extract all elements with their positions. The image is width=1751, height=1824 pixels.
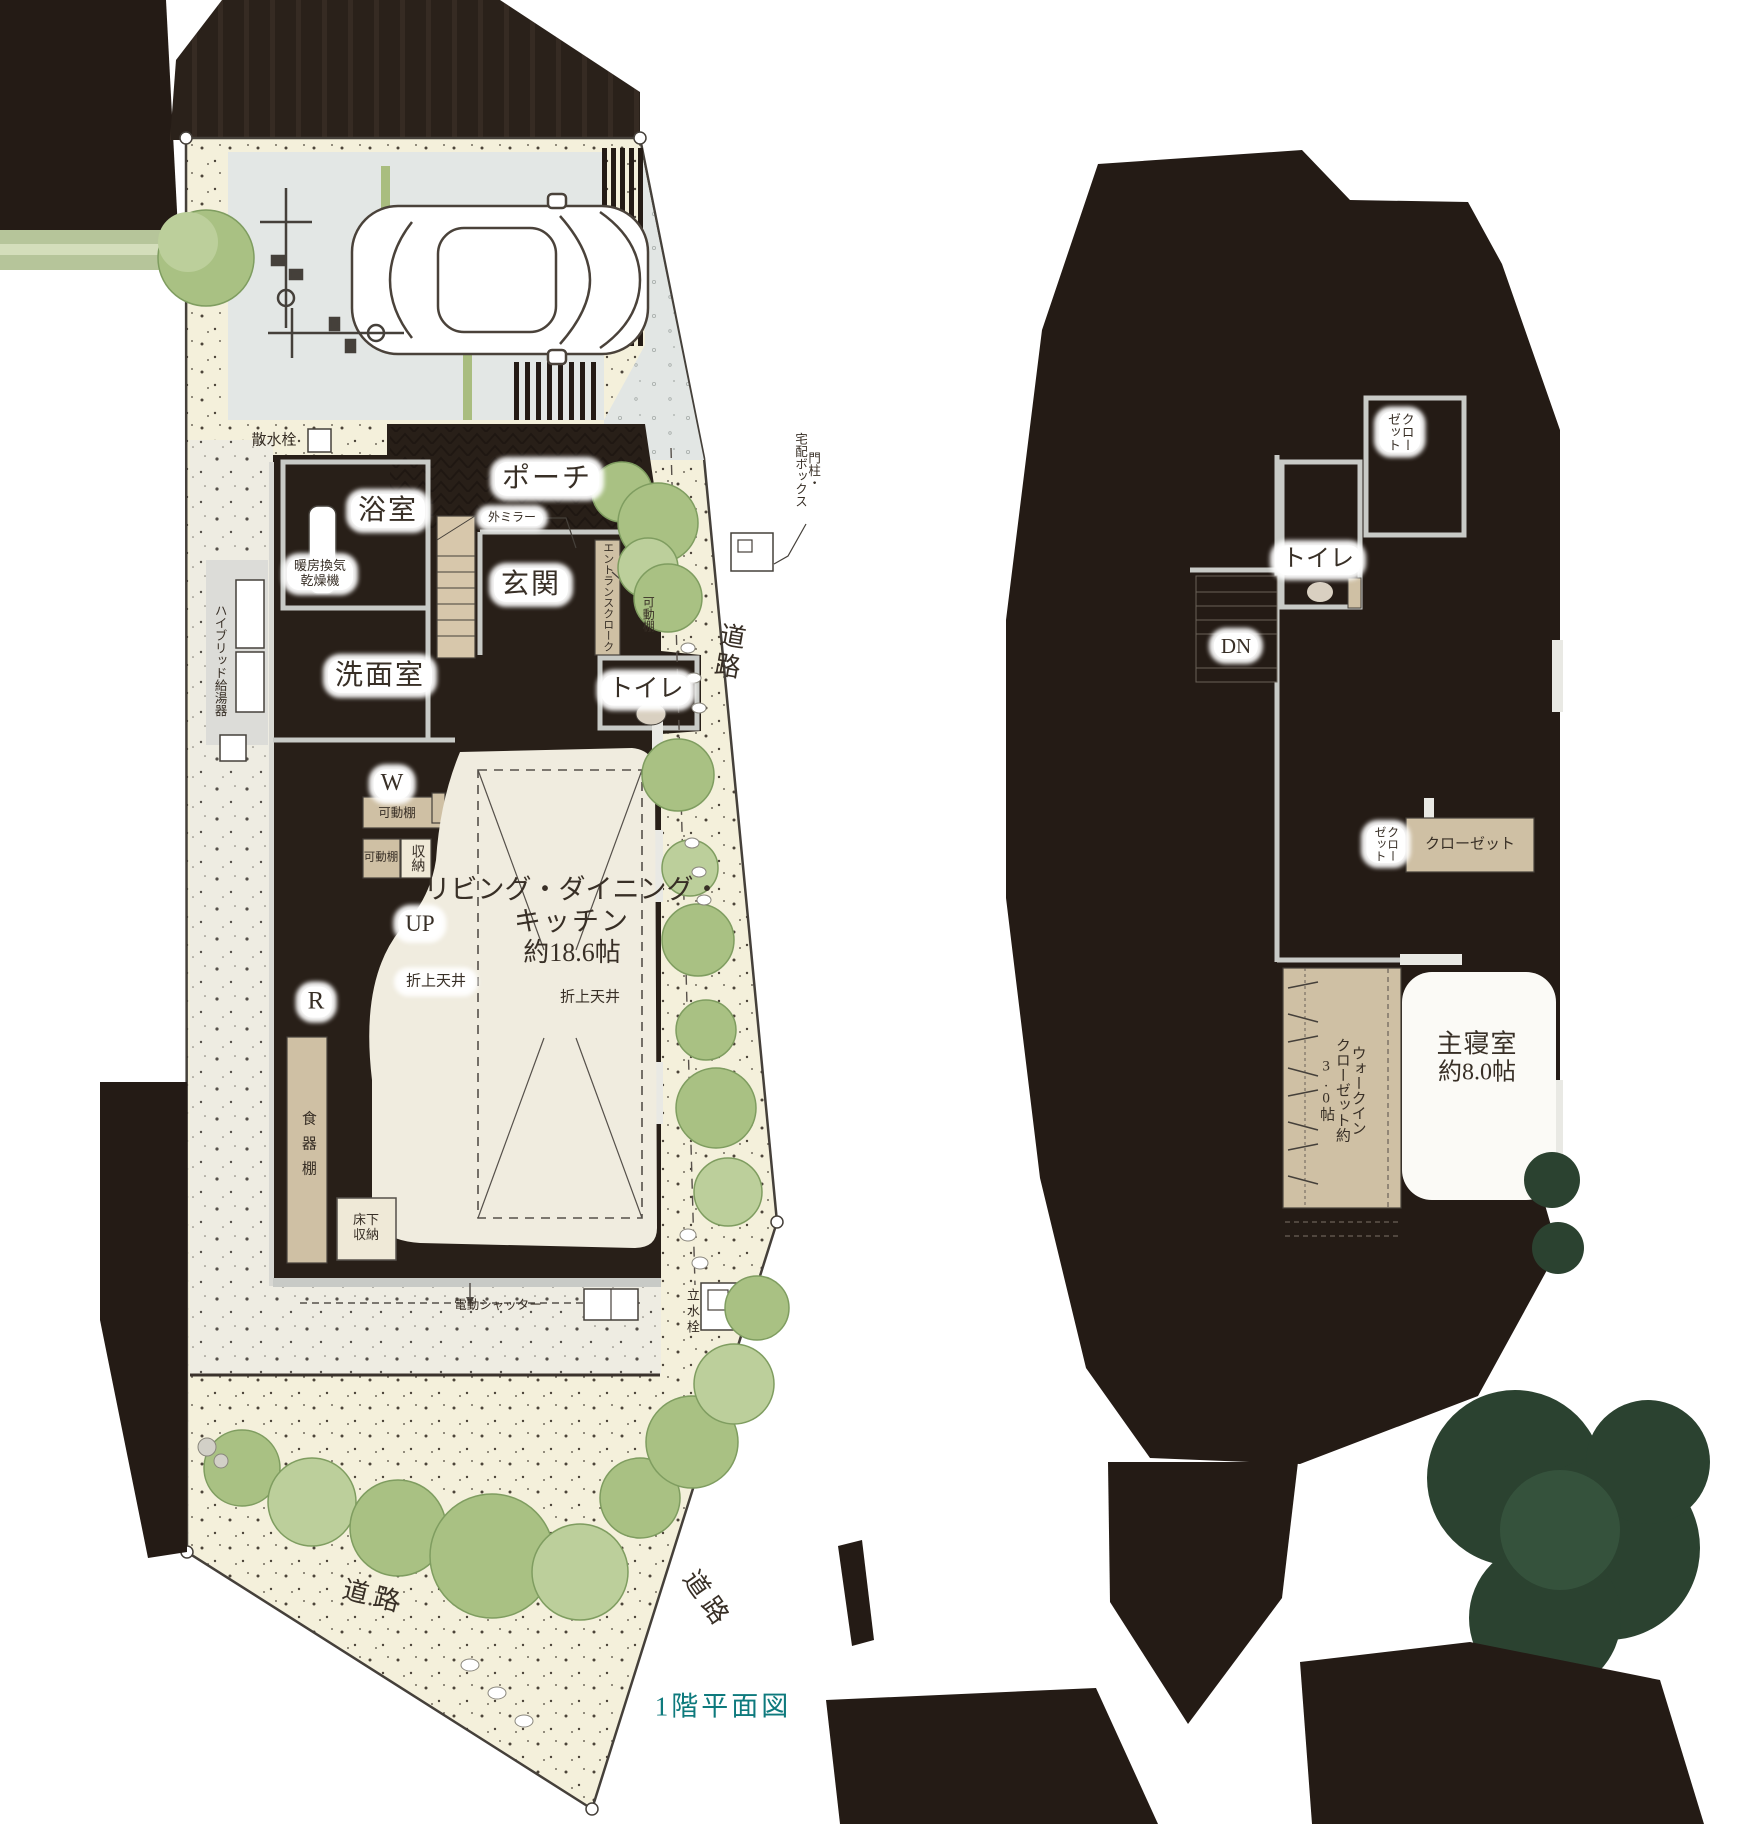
- label-exterior-mirror: 外ミラー: [481, 510, 543, 526]
- background-mass: [0, 0, 178, 230]
- sprinkler-box: [308, 429, 331, 452]
- label-movable-shelf-entrance: 可動棚: [642, 596, 655, 632]
- label-up: UP: [398, 910, 441, 938]
- label-closet-mid: クロー ゼット: [1366, 825, 1405, 863]
- label-floor-storage: 床下 収納: [353, 1213, 379, 1243]
- page-caption: 1階平面図: [655, 1691, 792, 1722]
- house-2f: [1006, 150, 1560, 1464]
- label-standing-tap: 立水栓: [685, 1288, 699, 1336]
- label-coffered-left: 折上天井: [399, 972, 473, 991]
- label-heater-dryer: 暖房換気 乾燥機: [287, 558, 353, 590]
- staircase: [437, 516, 475, 658]
- label-hybrid-water-heater: ハイブリッド給湯器: [212, 604, 225, 717]
- background-mass-left: [100, 1082, 187, 1558]
- room-label-toilet-1f: トイレ: [601, 675, 690, 706]
- staircase-down: [1196, 576, 1277, 682]
- label-closet-box: クローゼット: [1425, 836, 1515, 853]
- label-coffered-center: 折上天井: [560, 989, 620, 1006]
- floor-plan-page: 散水栓 浴室 ポーチ 外ミラー 暖房換気 乾燥機 玄関 エントランスクローク 可…: [0, 0, 1751, 1824]
- room-label-master-bedroom: 主寝室 約8.0帖: [1436, 1029, 1517, 1086]
- label-movable-sh elf-1: 可動棚: [378, 806, 416, 820]
- room-label-entrance: 玄関: [494, 568, 568, 602]
- label-sprinkler: 散水栓: [251, 432, 296, 449]
- label-washer: W: [374, 769, 411, 799]
- label-entrance-cloak: エントランスクローク: [601, 542, 613, 652]
- room-label-ldk-line3: 約18.6帖: [523, 938, 621, 968]
- room-label-bath: 浴室: [351, 494, 425, 528]
- background-mass-top: [170, 0, 640, 140]
- label-fridge: R: [301, 987, 332, 1018]
- site-plan-1f: [0, 0, 806, 1815]
- label-storage: 収納: [409, 844, 424, 872]
- car-icon: [352, 194, 648, 364]
- toilet-fixture-1f: [636, 703, 666, 725]
- label-dn: DN: [1214, 633, 1258, 659]
- label-gate-delivery-box: 門柱・ 宅配ボックス: [793, 433, 819, 508]
- label-movable-shelf-2: 可動棚: [364, 851, 399, 864]
- room-label-washroom: 洗面室: [328, 659, 432, 693]
- label-cupboard: 食器棚: [299, 1111, 315, 1186]
- room-label-toilet-2f: トイレ: [1275, 545, 1361, 575]
- room-label-ldk-line2: キッチン: [514, 906, 630, 937]
- label-closet-top: クロー ゼット: [1379, 412, 1420, 453]
- label-electric-shutter: 電動シャッター: [454, 1298, 542, 1312]
- label-walk-in-closet: ウォークイン クローゼット約 3.0帖: [1317, 1038, 1364, 1143]
- toilet-fixture-2f: [1307, 582, 1333, 602]
- room-label-porch: ポーチ: [495, 462, 599, 496]
- floor-plan-drawing: [0, 0, 1751, 1824]
- plan-2f: [1006, 150, 1563, 1464]
- room-label-ldk-line1: リビング・ダイニング・: [424, 874, 721, 905]
